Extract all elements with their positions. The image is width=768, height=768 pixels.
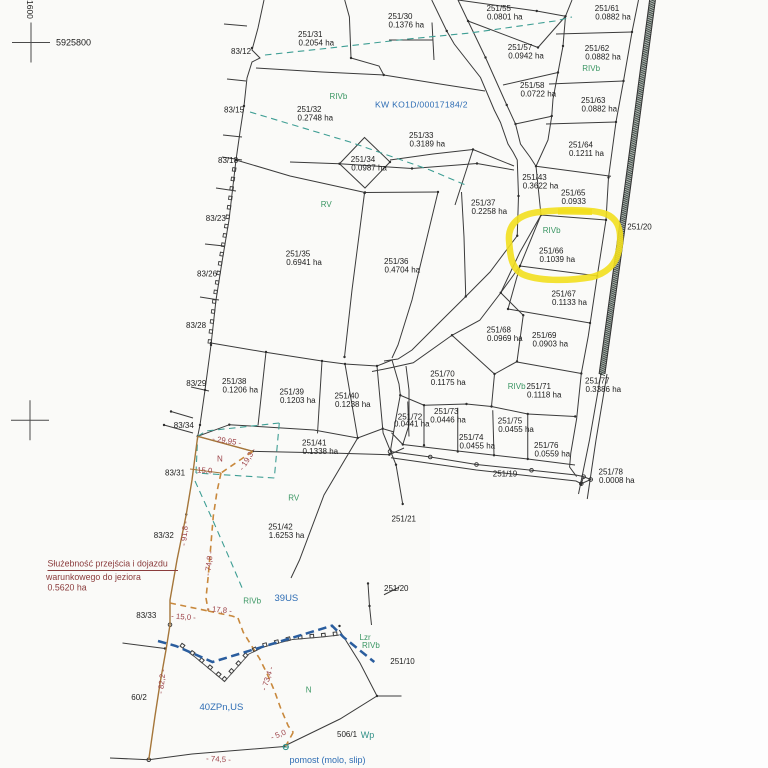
svg-text:0.0882 ha: 0.0882 ha [582,104,618,113]
svg-text:0.2054 ha: 0.2054 ha [299,38,335,47]
svg-text:0.1175 ha: 0.1175 ha [431,378,467,387]
svg-text:0.0882 ha: 0.0882 ha [585,52,621,61]
svg-text:0.1238 ha: 0.1238 ha [335,400,371,409]
svg-text:RIVb: RIVb [362,641,380,650]
svg-text:N: N [217,455,223,464]
svg-text:60/2: 60/2 [131,693,147,702]
svg-text:0.0455 ha: 0.0455 ha [460,441,496,450]
svg-text:0.1211 ha: 0.1211 ha [569,149,605,158]
svg-text:0.5620 ha: 0.5620 ha [48,583,87,593]
svg-text:251/20: 251/20 [627,223,652,232]
svg-text:Służebność przejścia i dojazdu: Służebność przejścia i dojazdu [48,559,168,569]
svg-text:1600: 1600 [25,0,35,19]
svg-text:0.0446 ha: 0.0446 ha [430,416,466,425]
svg-text:83/23: 83/23 [206,214,227,223]
svg-text:0.3189 ha: 0.3189 ha [410,139,446,148]
svg-text:0.0969 ha: 0.0969 ha [487,334,523,343]
svg-text:0.1118 ha: 0.1118 ha [527,390,562,399]
svg-text:RV: RV [321,200,333,209]
svg-text:RIVb: RIVb [508,382,526,391]
svg-text:0.1133 ha: 0.1133 ha [552,298,588,307]
svg-text:- 15,0 -: - 15,0 - [171,612,197,623]
svg-text:0.0559 ha: 0.0559 ha [535,449,571,458]
svg-text:0.2258 ha: 0.2258 ha [472,207,508,216]
svg-text:1.6253 ha: 1.6253 ha [269,531,305,540]
svg-text:RIVb: RIVb [543,226,561,235]
svg-text:506/1: 506/1 [337,730,358,739]
svg-text:0.0903 ha: 0.0903 ha [533,339,569,348]
svg-text:251/20: 251/20 [384,584,409,593]
svg-text:0.0455 ha: 0.0455 ha [498,425,534,434]
svg-text:83/12: 83/12 [231,47,252,56]
svg-text:0.2748 ha: 0.2748 ha [298,113,334,122]
svg-text:251/19: 251/19 [493,470,518,479]
svg-text:KW KO1D/00017184/2: KW KO1D/00017184/2 [375,100,468,110]
svg-text:0.3622 ha: 0.3622 ha [523,181,559,190]
svg-text:0.1039 ha: 0.1039 ha [540,255,576,264]
svg-text:40ZPn,US: 40ZPn,US [200,702,244,713]
svg-text:RIVb: RIVb [582,64,600,73]
svg-text:0.0801 ha: 0.0801 ha [487,12,523,21]
svg-text:0.1206 ha: 0.1206 ha [223,385,259,394]
svg-text:0.0722 ha: 0.0722 ha [521,89,557,98]
svg-text:0.0987 ha: 0.0987 ha [351,163,387,172]
svg-text:83/26: 83/26 [197,270,218,279]
svg-text:0.1203 ha: 0.1203 ha [280,396,316,405]
svg-text:83/32: 83/32 [154,531,175,540]
svg-text:0.4704 ha: 0.4704 ha [385,265,421,274]
svg-text:251/21: 251/21 [392,515,417,524]
svg-text:83/28: 83/28 [186,321,207,330]
svg-text:39US: 39US [275,593,299,604]
svg-text:0.0933: 0.0933 [562,197,587,206]
svg-text:0.3386 ha: 0.3386 ha [586,385,622,394]
svg-text:0.1376 ha: 0.1376 ha [389,20,425,29]
svg-text:RIVb: RIVb [243,597,261,606]
svg-text:RV: RV [288,493,300,502]
svg-text:251/10: 251/10 [390,657,415,666]
svg-text:15,0: 15,0 [197,466,213,476]
svg-text:0.0942 ha: 0.0942 ha [508,51,544,60]
svg-text:pomost (molo, slip): pomost (molo, slip) [290,755,366,765]
svg-text:0.0441 ha: 0.0441 ha [394,420,430,429]
svg-text:N: N [306,685,312,694]
svg-text:Wp: Wp [361,730,375,740]
svg-text:0.6941 ha: 0.6941 ha [286,258,322,267]
svg-text:RIVb: RIVb [330,92,348,101]
svg-text:83/31: 83/31 [165,468,186,477]
svg-text:83/33: 83/33 [136,611,157,620]
svg-text:83/29: 83/29 [186,379,207,388]
svg-text:0.1338 ha: 0.1338 ha [303,447,339,456]
svg-text:0.0008 ha: 0.0008 ha [599,476,635,485]
svg-text:83/15: 83/15 [224,106,245,115]
svg-text:0.0882 ha: 0.0882 ha [595,12,631,21]
svg-text:83/18: 83/18 [218,156,239,165]
svg-text:- 74,5 -: - 74,5 - [206,754,232,764]
svg-text:warunkowego do jeziora: warunkowego do jeziora [45,572,141,582]
svg-text:83/34: 83/34 [174,421,195,430]
svg-text:5925800: 5925800 [56,38,91,48]
